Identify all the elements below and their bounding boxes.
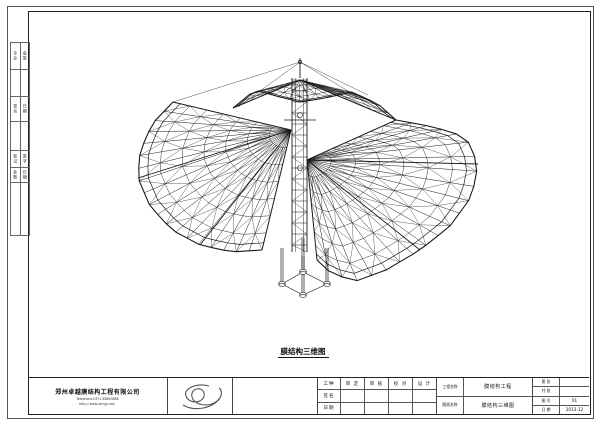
sheet-no-value	[560, 378, 589, 386]
date-label: 日 期	[533, 406, 560, 414]
drawing-no-value: 01	[560, 397, 589, 405]
countersign-empty-cell	[11, 122, 21, 150]
countersign-label: 处数	[11, 168, 21, 182]
drawing-caption: 膜结构三维图	[258, 346, 348, 357]
sig-empty-cell	[341, 403, 365, 414]
sig-row2-label: 签名	[318, 390, 341, 401]
sig-col-header: 审 定	[341, 378, 365, 389]
drawing-name-label: 图纸名称	[437, 397, 464, 415]
sig-col-header: 设 计	[413, 378, 436, 389]
countersign-empty-cell	[11, 70, 21, 96]
company-logo	[168, 378, 233, 414]
company-telephone: Telephone:0371-88643888	[76, 397, 118, 401]
sig-empty-cell	[341, 390, 365, 401]
countersign-label: 专业	[11, 43, 21, 69]
title-block: 郑州卓越膜结构工程有限公司 Telephone:0371-88643888 ht…	[28, 377, 589, 414]
sig-row3-label: 日期	[318, 403, 341, 414]
stamp-cell	[233, 378, 318, 414]
drawing-name-value: 膜结构三维图	[464, 397, 532, 415]
total-sheets-label: 共 张	[533, 387, 560, 395]
countersign-label: 标记	[11, 151, 21, 167]
company-website: http:// www.zzmjg.com	[79, 402, 115, 406]
sig-empty-cell	[389, 403, 413, 414]
project-block: 工程名称 膜结构工程 图纸名称 膜结构三维图	[437, 378, 533, 414]
membrane-structure-3d-wireframe	[28, 11, 589, 377]
countersign-empty-cell	[11, 183, 21, 235]
signature-grid: 工种 审 定 审 核 校 对 设 计 签名 日期	[318, 378, 437, 414]
sig-empty-cell	[389, 390, 413, 401]
sheet-no-label: 第 张	[533, 378, 560, 386]
project-name-label: 工程名称	[437, 378, 464, 396]
sig-empty-cell	[365, 390, 389, 401]
company-name: 郑州卓越膜结构工程有限公司	[55, 387, 140, 396]
drawing-sheet: 专业 会签 签名 日期 标记 签字 处数 日期 膜结构三维图	[0, 0, 600, 424]
drawing-no-label: 图 号	[533, 397, 560, 405]
sig-empty-cell	[413, 403, 436, 414]
project-name-value: 膜结构工程	[464, 378, 532, 396]
company-block: 郑州卓越膜结构工程有限公司 Telephone:0371-88643888 ht…	[28, 378, 168, 414]
info-block: 第 张 共 张 图 号 01 日 期 2013-12	[533, 378, 589, 414]
sig-row1-label: 工种	[318, 378, 341, 389]
total-sheets-value	[560, 387, 589, 395]
swirl-logo-icon	[173, 381, 227, 411]
countersign-label: 签名	[11, 97, 21, 121]
sig-col-header: 审 核	[365, 378, 389, 389]
countersign-strip: 专业 会签 签名 日期 标记 签字 处数 日期	[10, 42, 30, 236]
date-value: 2013-12	[560, 406, 589, 414]
sig-col-header: 校 对	[389, 378, 413, 389]
sig-empty-cell	[413, 390, 436, 401]
sig-empty-cell	[365, 403, 389, 414]
